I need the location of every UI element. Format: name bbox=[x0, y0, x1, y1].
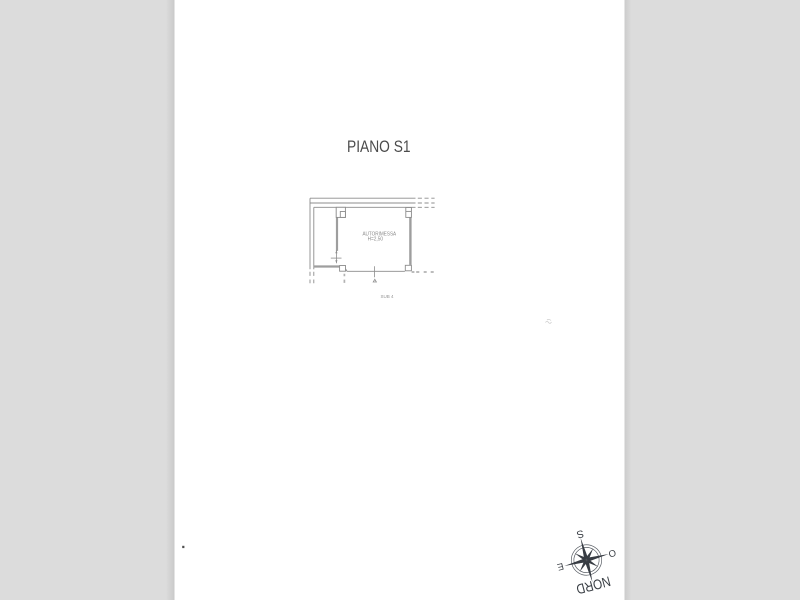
svg-text:H=2,50: H=2,50 bbox=[368, 237, 384, 243]
svg-text:SUB 4: SUB 4 bbox=[381, 294, 394, 300]
svg-text:PIANO S1: PIANO S1 bbox=[347, 138, 411, 156]
